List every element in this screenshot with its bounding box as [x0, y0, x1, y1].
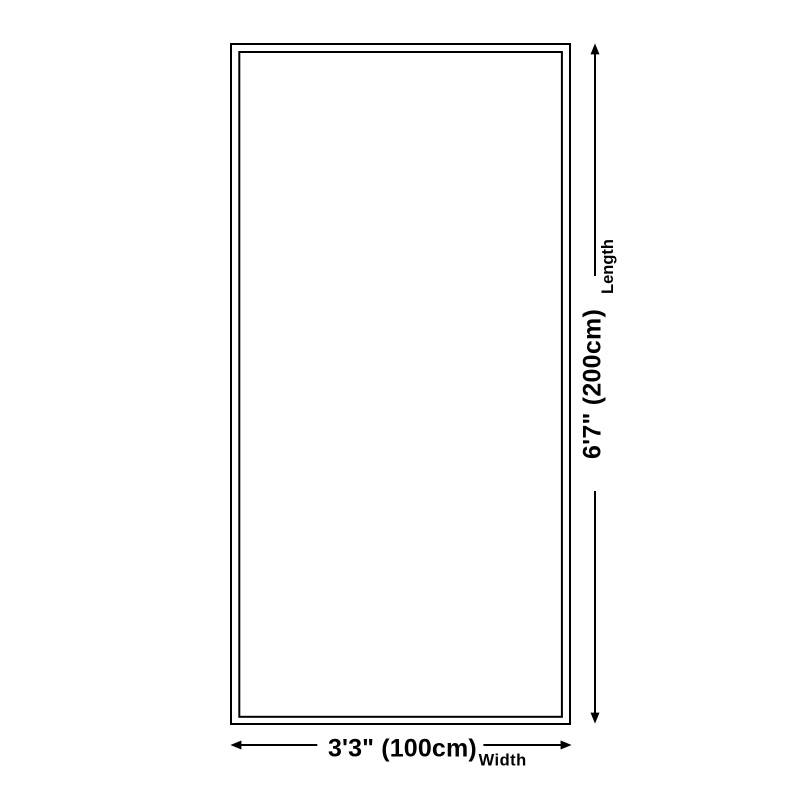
- svg-text:6'7" (200cm): 6'7" (200cm): [578, 309, 606, 459]
- svg-text:Length: Length: [599, 239, 617, 294]
- svg-text:3'3" (100cm): 3'3" (100cm): [328, 734, 477, 762]
- svg-text:Width: Width: [479, 752, 527, 770]
